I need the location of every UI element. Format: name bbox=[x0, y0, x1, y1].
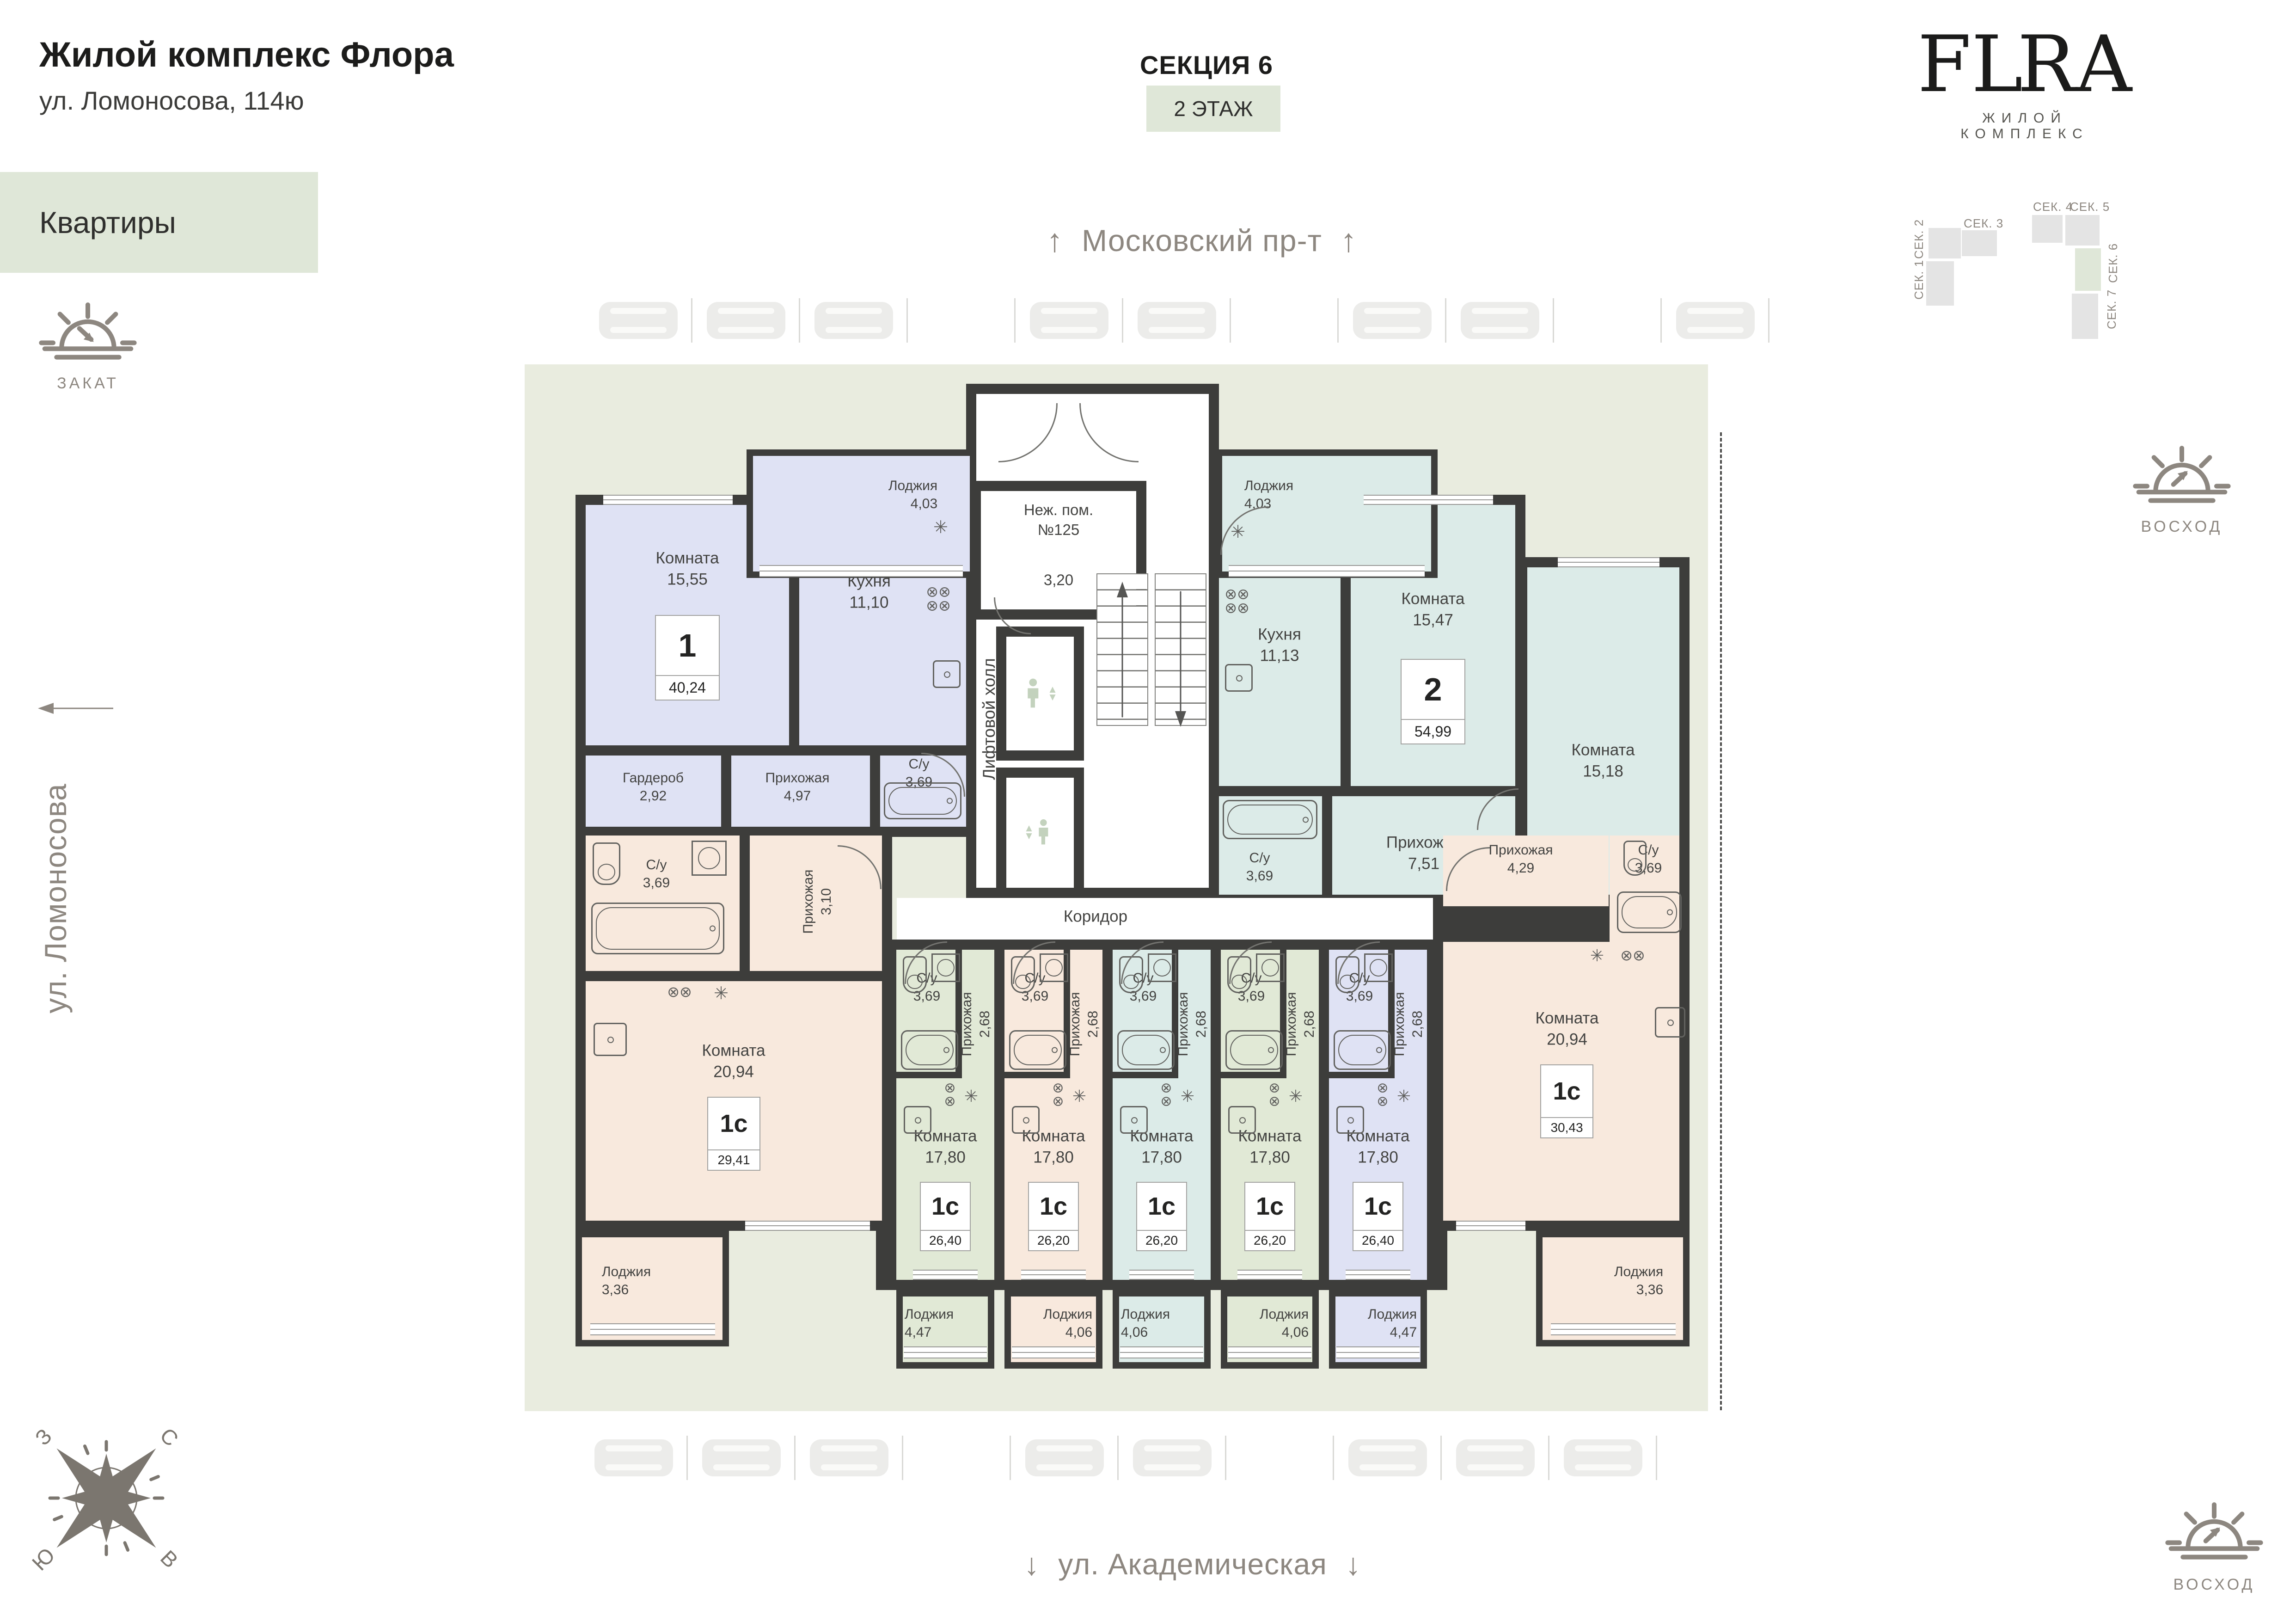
car-icon bbox=[1456, 1439, 1535, 1476]
apt5-bathtub bbox=[1009, 1030, 1066, 1070]
apt1-loggia-label: Лоджия4,03 bbox=[888, 477, 937, 513]
apt5-sink bbox=[1012, 1106, 1040, 1134]
apt3-kitchen-sink bbox=[594, 1023, 627, 1056]
section-boundary-line bbox=[1720, 432, 1722, 1410]
apt5-loggia-label: Лоджия4,06 bbox=[1043, 1305, 1092, 1341]
nezh-room-label: Неж. пом.№125 bbox=[1024, 500, 1093, 540]
street-bottom-arrow-left: ↓ bbox=[1024, 1547, 1040, 1582]
apt5-area: 26,20 bbox=[1029, 1230, 1078, 1250]
apt4-bathtub bbox=[901, 1030, 958, 1070]
apt2-living1-window bbox=[1364, 495, 1493, 505]
car-icon bbox=[814, 302, 893, 339]
apt9-living-window bbox=[1456, 1221, 1525, 1231]
street-top-arrow-left: ↑ bbox=[1047, 222, 1063, 259]
apt1-stove-icon: ⊗⊗ ⊗⊗ bbox=[926, 585, 951, 613]
floor-badge[interactable]: 2 ЭТАЖ bbox=[1146, 86, 1280, 132]
map-label-sec2: СЕК. 2 bbox=[1912, 219, 1926, 259]
apt3-appliance-icon: ✳ bbox=[714, 985, 729, 1001]
corridor bbox=[897, 898, 1433, 940]
apt8-type: 1с bbox=[1353, 1183, 1402, 1230]
apt9-bathtub bbox=[1617, 891, 1682, 933]
map-block-sec1[interactable] bbox=[1926, 261, 1954, 306]
apt3-bathtub bbox=[591, 903, 724, 954]
flora-logo: FL RA ЖИЛОЙ КОМПЛЕКС bbox=[1918, 25, 2131, 142]
floor-badge-label: 2 ЭТАЖ bbox=[1174, 96, 1253, 121]
map-block-sec3[interactable] bbox=[1962, 230, 1997, 256]
apt1-loggia[interactable] bbox=[747, 449, 976, 578]
apt6-unit-card[interactable]: 1с 26,20 bbox=[1136, 1182, 1187, 1251]
apt1-type: 1 bbox=[656, 616, 719, 675]
apt6-sink bbox=[1120, 1106, 1148, 1134]
apt5-loggia-window bbox=[1012, 1346, 1095, 1358]
apt2-kitchen-sink bbox=[1225, 664, 1253, 692]
apt2-type: 2 bbox=[1402, 660, 1464, 719]
apt7-hallway-label: Прихожая2,68 bbox=[1282, 992, 1318, 1056]
apt6-loggia-window bbox=[1120, 1346, 1203, 1358]
apt7-stove-icon: ⊗ ⊗ bbox=[1268, 1082, 1280, 1108]
apt8-bath-wall2 bbox=[1329, 1072, 1395, 1078]
car-icon bbox=[1348, 1439, 1427, 1476]
apt1-kitchen-label: Кухня11,10 bbox=[847, 571, 891, 613]
car-icon bbox=[1025, 1439, 1104, 1476]
apt5-hallway-label: Прихожая2,68 bbox=[1066, 992, 1102, 1056]
apt1-hallway-label: Прихожая4,97 bbox=[765, 769, 829, 805]
apt3-washer bbox=[692, 841, 727, 876]
compass-south: Ю bbox=[28, 1543, 60, 1575]
map-label-sec3: СЕК. 3 bbox=[1964, 216, 2003, 231]
street-left-arrow bbox=[37, 700, 116, 716]
apt9-unit-card[interactable]: 1с 30,43 bbox=[1540, 1064, 1593, 1138]
apt1-living-label: Комната15,55 bbox=[655, 548, 719, 590]
street-top-label: Московский пр-т bbox=[1082, 223, 1322, 258]
street-bottom-arrow-right: ↓ bbox=[1346, 1547, 1361, 1582]
apt4-hallway-label: Прихожая2,68 bbox=[958, 992, 994, 1056]
apt2-living2-window bbox=[1558, 557, 1659, 567]
apt7-appliance-icon: ✳ bbox=[1289, 1089, 1303, 1105]
car-icon bbox=[1564, 1439, 1642, 1476]
car-icon bbox=[1133, 1439, 1212, 1476]
apt2-kitchen-label: Кухня11,13 bbox=[1258, 624, 1301, 666]
apt3-type: 1с bbox=[708, 1098, 759, 1149]
apt5-stove-icon: ⊗ ⊗ bbox=[1052, 1082, 1064, 1108]
corridor-label: Коридор bbox=[1064, 906, 1127, 927]
compass-west: З bbox=[31, 1424, 56, 1450]
apt3-bathroom-label: С/у3,69 bbox=[643, 856, 670, 892]
apt7-area: 26,20 bbox=[1245, 1230, 1294, 1250]
apt5-type: 1с bbox=[1029, 1183, 1078, 1230]
apt2-living2-label: Комната15,18 bbox=[1571, 740, 1635, 782]
apt5-appliance-icon: ✳ bbox=[1072, 1089, 1086, 1105]
apt8-bathtub bbox=[1334, 1030, 1391, 1070]
sunset-icon bbox=[37, 301, 139, 372]
apt8-loggia-label: Лоджия4,47 bbox=[1368, 1305, 1417, 1341]
car-icon bbox=[599, 302, 678, 339]
sunrise-icon-top bbox=[2131, 444, 2233, 516]
page-title: Жилой комплекс Флора bbox=[39, 35, 454, 75]
compass-icon: З С Ю В bbox=[28, 1419, 185, 1577]
apt6-bathtub bbox=[1117, 1030, 1175, 1070]
apartments-badge-label: Квартиры bbox=[39, 205, 176, 240]
apt9-appliance-icon: ✳ bbox=[1590, 948, 1604, 964]
section-title: СЕКЦИЯ 6 bbox=[1140, 50, 1273, 80]
apt4-appliance-icon: ✳ bbox=[964, 1089, 978, 1105]
apt4-room-window bbox=[913, 1270, 978, 1280]
apt4-bath-wall2 bbox=[896, 1072, 962, 1078]
apt4-type: 1с bbox=[921, 1183, 970, 1230]
map-label-sec6: СЕК. 6 bbox=[2106, 243, 2120, 283]
map-block-sec5[interactable] bbox=[2065, 215, 2100, 246]
apt2-area: 54,99 bbox=[1402, 719, 1464, 743]
car-icon bbox=[1030, 302, 1108, 339]
car-icon bbox=[1676, 302, 1755, 339]
apt2-bathroom-label: С/у3,69 bbox=[1246, 849, 1273, 885]
apt6-type: 1с bbox=[1137, 1183, 1186, 1230]
apt3-area: 29,41 bbox=[708, 1149, 759, 1170]
stairs-direction-arrows bbox=[1096, 573, 1206, 740]
apt3-loggia-window bbox=[590, 1323, 715, 1335]
apt4-loggia-window bbox=[904, 1346, 987, 1358]
apt7-loggia-window bbox=[1228, 1346, 1311, 1358]
sunrise-icon-bottom bbox=[2163, 1500, 2265, 1572]
apt9-loggia-label: Лоджия3,36 bbox=[1614, 1263, 1663, 1299]
map-label-sec1: СЕК. 1 bbox=[1912, 260, 1926, 300]
apt5-room-window bbox=[1021, 1270, 1086, 1280]
page-subtitle: ул. Ломоносова, 114ю bbox=[39, 86, 304, 116]
apt6-stove-icon: ⊗ ⊗ bbox=[1160, 1082, 1172, 1108]
apt9-type: 1с bbox=[1541, 1065, 1592, 1117]
apt1-wardrobe-label: Гардероб2,92 bbox=[623, 769, 684, 805]
map-block-sec2[interactable] bbox=[1929, 228, 1961, 258]
apt7-bathtub bbox=[1225, 1030, 1283, 1070]
apt4-stove-icon: ⊗ ⊗ bbox=[944, 1082, 955, 1108]
apartments-badge[interactable]: Квартиры bbox=[0, 172, 318, 273]
apt4-sink bbox=[904, 1106, 931, 1134]
apt6-room-window bbox=[1129, 1270, 1194, 1280]
apt4-unit-card[interactable]: 1с 26,40 bbox=[920, 1182, 971, 1251]
apt7-loggia-label: Лоджия4,06 bbox=[1260, 1305, 1309, 1341]
apt3-living-label: Комната20,94 bbox=[702, 1040, 765, 1082]
apt1-loggia-window bbox=[759, 565, 963, 577]
compass-north: С bbox=[155, 1423, 183, 1451]
apt8-sink bbox=[1336, 1106, 1364, 1134]
apt8-loggia-window bbox=[1336, 1346, 1420, 1358]
car-icon bbox=[1138, 302, 1216, 339]
apt7-type: 1с bbox=[1245, 1183, 1294, 1230]
apt8-room-window bbox=[1346, 1270, 1410, 1280]
apt9-toilet bbox=[1623, 841, 1647, 876]
logo-tagline: ЖИЛОЙ КОМПЛЕКС bbox=[1918, 111, 2131, 142]
apt6-appliance-icon: ✳ bbox=[1181, 1089, 1194, 1105]
apt3-hallway-label: Прихожая3,10 bbox=[799, 869, 835, 934]
street-top-arrow-right: ↑ bbox=[1341, 222, 1357, 259]
apt8-area: 26,40 bbox=[1353, 1230, 1402, 1250]
apt4-loggia-label: Лоджия4,47 bbox=[905, 1305, 954, 1341]
apt6-loggia-label: Лоджия4,06 bbox=[1121, 1305, 1170, 1341]
apt9-loggia-window bbox=[1551, 1323, 1676, 1335]
apt2-stove-icon: ⊗⊗ ⊗⊗ bbox=[1225, 587, 1249, 615]
street-bottom: ↓ ул. Академическая ↓ bbox=[1024, 1547, 1361, 1582]
apt9-stove-icon: ⊗⊗ bbox=[1620, 948, 1645, 962]
car-icon bbox=[810, 1439, 888, 1476]
apt4-area: 26,40 bbox=[921, 1230, 970, 1250]
apt2-bathtub bbox=[1223, 800, 1317, 839]
apt5-bath-wall2 bbox=[1004, 1072, 1070, 1078]
apt1-kitchen-sink bbox=[933, 660, 961, 688]
apt1-appliance-icon: ✳ bbox=[933, 519, 948, 535]
map-label-sec5: СЕК. 5 bbox=[2070, 200, 2110, 214]
car-icon bbox=[1353, 302, 1432, 339]
car-icon bbox=[1461, 302, 1539, 339]
apt6-bath-wall2 bbox=[1113, 1072, 1178, 1078]
map-block-sec6-active[interactable] bbox=[2075, 248, 2101, 291]
map-block-sec4[interactable] bbox=[2032, 215, 2063, 243]
apt3-unit-card[interactable]: 1с 29,41 bbox=[707, 1097, 760, 1171]
apt7-room-window bbox=[1237, 1270, 1302, 1280]
apt3-stove-icon: ⊗⊗ bbox=[667, 985, 692, 999]
logo-letters-pre: FL bbox=[1917, 25, 2023, 103]
car-icon bbox=[707, 302, 785, 339]
car-icon bbox=[594, 1439, 673, 1476]
apt7-sink bbox=[1228, 1106, 1256, 1134]
apt8-appliance-icon: ✳ bbox=[1397, 1089, 1411, 1105]
apt6-hallway-label: Прихожая2,68 bbox=[1174, 992, 1210, 1056]
apt2-living1-label: Комната15,47 bbox=[1401, 589, 1464, 631]
apt8-stove-icon: ⊗ ⊗ bbox=[1377, 1082, 1388, 1108]
apt2-unit-card[interactable]: 2 54,99 bbox=[1401, 659, 1465, 744]
elevator-2-icon: ▲▼ bbox=[1012, 802, 1068, 862]
apt9-area: 30,43 bbox=[1541, 1117, 1592, 1137]
apt2-loggia-label: Лоджия4,03 bbox=[1244, 477, 1293, 513]
apt1-area: 40,24 bbox=[656, 675, 719, 700]
apt1-unit-card[interactable]: 1 40,24 bbox=[655, 615, 720, 700]
apt8-unit-card[interactable]: 1с 26,40 bbox=[1353, 1182, 1403, 1251]
map-label-sec7: СЕК. 7 bbox=[2105, 289, 2119, 329]
logo-letters-post: RA bbox=[2017, 25, 2132, 103]
car-icon bbox=[702, 1439, 781, 1476]
map-block-sec7[interactable] bbox=[2072, 294, 2098, 339]
nezh-room-area: 3,20 bbox=[1044, 571, 1073, 590]
apt6-area: 26,20 bbox=[1137, 1230, 1186, 1250]
map-label-sec4: СЕК. 4 bbox=[2033, 200, 2073, 214]
street-top: ↑ Московский пр-т ↑ bbox=[1047, 222, 1357, 259]
apt2-loggia-window bbox=[1229, 565, 1425, 577]
apt1-living-window bbox=[603, 495, 733, 505]
apt9-kitchen-sink bbox=[1655, 1007, 1685, 1038]
sunrise-bottom-label: ВОСХОД bbox=[2174, 1576, 2255, 1594]
apt7-unit-card[interactable]: 1с 26,20 bbox=[1244, 1182, 1295, 1251]
apt5-unit-card[interactable]: 1с 26,20 bbox=[1028, 1182, 1079, 1251]
apt8-hallway-label: Прихожая2,68 bbox=[1390, 992, 1427, 1056]
apt3-toilet bbox=[593, 842, 620, 885]
sunrise-top-label: ВОСХОД bbox=[2141, 518, 2223, 536]
apt3-loggia-label: Лоджия3,36 bbox=[602, 1263, 651, 1299]
street-left: ул. Ломоносова bbox=[38, 723, 73, 1074]
apt9-hallway-label: Прихожая4,29 bbox=[1488, 841, 1553, 877]
sunset-label: ЗАКАТ bbox=[57, 375, 119, 393]
compass-east: В bbox=[156, 1546, 183, 1573]
apt3-living-window bbox=[745, 1221, 870, 1231]
elevator-1-icon: ▲▼ bbox=[1012, 661, 1068, 726]
apt7-bath-wall2 bbox=[1221, 1072, 1286, 1078]
street-bottom-label: ул. Академическая bbox=[1058, 1547, 1327, 1581]
apt9-living-label: Комната20,94 bbox=[1535, 1008, 1598, 1050]
